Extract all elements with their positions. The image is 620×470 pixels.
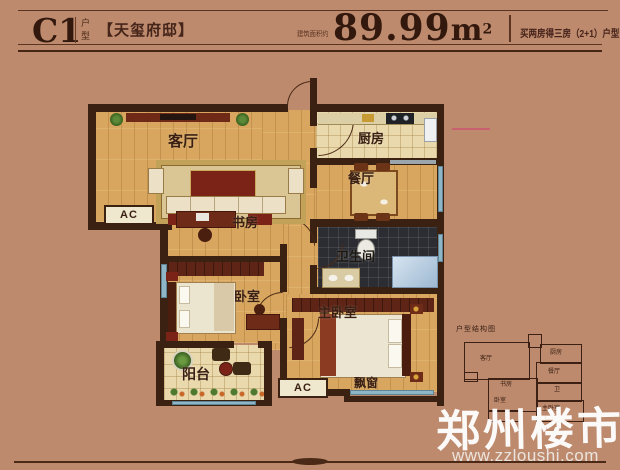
wall-segment bbox=[88, 104, 96, 230]
armchair bbox=[148, 168, 164, 194]
kitchen-vent bbox=[390, 160, 436, 164]
room-label-living: 客厅 bbox=[168, 130, 198, 151]
wall-segment bbox=[264, 341, 272, 406]
wall-segment bbox=[310, 287, 444, 294]
room-label-master: 主卧室 bbox=[318, 302, 357, 321]
desk-chair bbox=[198, 228, 212, 242]
window-dining bbox=[438, 166, 443, 212]
pillow bbox=[388, 319, 402, 343]
window-balcony bbox=[172, 401, 256, 405]
wall-segment bbox=[348, 396, 437, 402]
ac-unit-label: AC bbox=[278, 378, 328, 398]
fridge bbox=[424, 118, 437, 142]
area-figure: 89.99m2 bbox=[333, 7, 492, 49]
mini-label-study: 书房 bbox=[500, 382, 512, 388]
room-label-study: 书房 bbox=[232, 212, 258, 231]
area-superscript: 2 bbox=[482, 22, 492, 38]
header-top-rule bbox=[18, 10, 608, 11]
pillow bbox=[179, 286, 190, 304]
watermark-url: www.zzloushi.com bbox=[452, 446, 599, 466]
bed-headboard bbox=[168, 282, 176, 332]
mini-label-kitchen: 厨房 bbox=[550, 350, 562, 356]
balcony-table bbox=[219, 362, 233, 376]
wall-segment bbox=[160, 341, 234, 348]
room-label-bathroom: 卫生间 bbox=[336, 246, 375, 265]
area-value: 89.99 bbox=[333, 7, 451, 49]
dining-chair bbox=[354, 213, 368, 221]
balcony-chair bbox=[233, 362, 251, 375]
unit-type-char-top: 户 bbox=[81, 18, 90, 28]
unit-type-char-bottom: 型 bbox=[81, 31, 90, 41]
wall-segment bbox=[310, 104, 444, 112]
wardrobe bbox=[168, 262, 264, 276]
desk-paper bbox=[196, 213, 209, 221]
ac-unit-label: AC bbox=[104, 205, 154, 225]
mini-label-dining: 餐厅 bbox=[548, 369, 560, 375]
toilet-icon bbox=[355, 229, 377, 239]
door-arc-entry bbox=[287, 81, 312, 106]
nightstand-lamp bbox=[410, 304, 423, 314]
room-label-bedroom: 卧室 bbox=[234, 286, 260, 305]
wall-segment bbox=[280, 318, 287, 349]
area-unit: m bbox=[451, 13, 483, 48]
dresser bbox=[292, 318, 304, 360]
stove bbox=[386, 113, 414, 124]
armchair bbox=[288, 168, 304, 194]
cookware bbox=[362, 114, 374, 122]
nightstand bbox=[166, 272, 178, 281]
plant-icon bbox=[110, 113, 123, 126]
red-marker-line bbox=[452, 128, 490, 130]
mini-map-title: 户型结构图 bbox=[456, 324, 496, 334]
shower bbox=[392, 256, 438, 288]
wall-segment bbox=[88, 104, 288, 112]
room-label-dining: 餐厅 bbox=[348, 168, 374, 187]
master-headboard bbox=[402, 314, 411, 376]
tv bbox=[160, 114, 196, 120]
bedroom-chair bbox=[254, 304, 265, 315]
bedroom-desk bbox=[246, 314, 280, 330]
balcony-chair bbox=[212, 348, 230, 361]
nightstand-lamp bbox=[410, 372, 423, 382]
code-divider bbox=[75, 17, 76, 43]
pillow bbox=[388, 344, 402, 368]
floorplan-flyer: C1 户 型 【天玺府邸】 建筑面积约 89.99m2 买两房得三房（2+1）户… bbox=[0, 0, 620, 470]
project-name: 【天玺府邸】 bbox=[98, 19, 194, 40]
room-label-kitchen: 厨房 bbox=[358, 128, 384, 147]
mini-label-bath: 卫 bbox=[554, 387, 560, 393]
wall-segment bbox=[280, 244, 287, 292]
room-label-bay-window: 飘窗 bbox=[354, 374, 378, 391]
mini-label-living: 客厅 bbox=[480, 356, 492, 362]
window-bedroom-left bbox=[161, 264, 167, 298]
dining-chair bbox=[376, 163, 390, 171]
wall-segment bbox=[310, 104, 317, 126]
room-label-balcony: 阳台 bbox=[182, 364, 210, 384]
nightstand bbox=[166, 332, 178, 341]
master-bed-foot-throw bbox=[320, 314, 336, 376]
window-bathroom bbox=[438, 234, 443, 262]
wall-segment bbox=[258, 341, 272, 348]
dining-chair bbox=[376, 213, 390, 221]
plant-icon bbox=[236, 113, 249, 126]
blanket bbox=[214, 283, 234, 331]
vanity bbox=[322, 268, 360, 288]
promo-text: 买两房得三房（2+1）户型 bbox=[520, 25, 619, 40]
pillow bbox=[179, 310, 190, 328]
kitchen-counter bbox=[318, 113, 437, 125]
wall-segment bbox=[310, 158, 317, 188]
wall-segment bbox=[156, 341, 164, 406]
footer-ornament bbox=[292, 458, 328, 465]
header-divider bbox=[509, 15, 511, 42]
balcony-plants-row bbox=[168, 386, 264, 398]
header-bottom-rule bbox=[18, 44, 602, 52]
area-prefix: 建筑面积约 bbox=[297, 29, 329, 39]
mini-ac-box bbox=[464, 372, 478, 382]
unit-type-vertical: 户 型 bbox=[81, 17, 91, 43]
